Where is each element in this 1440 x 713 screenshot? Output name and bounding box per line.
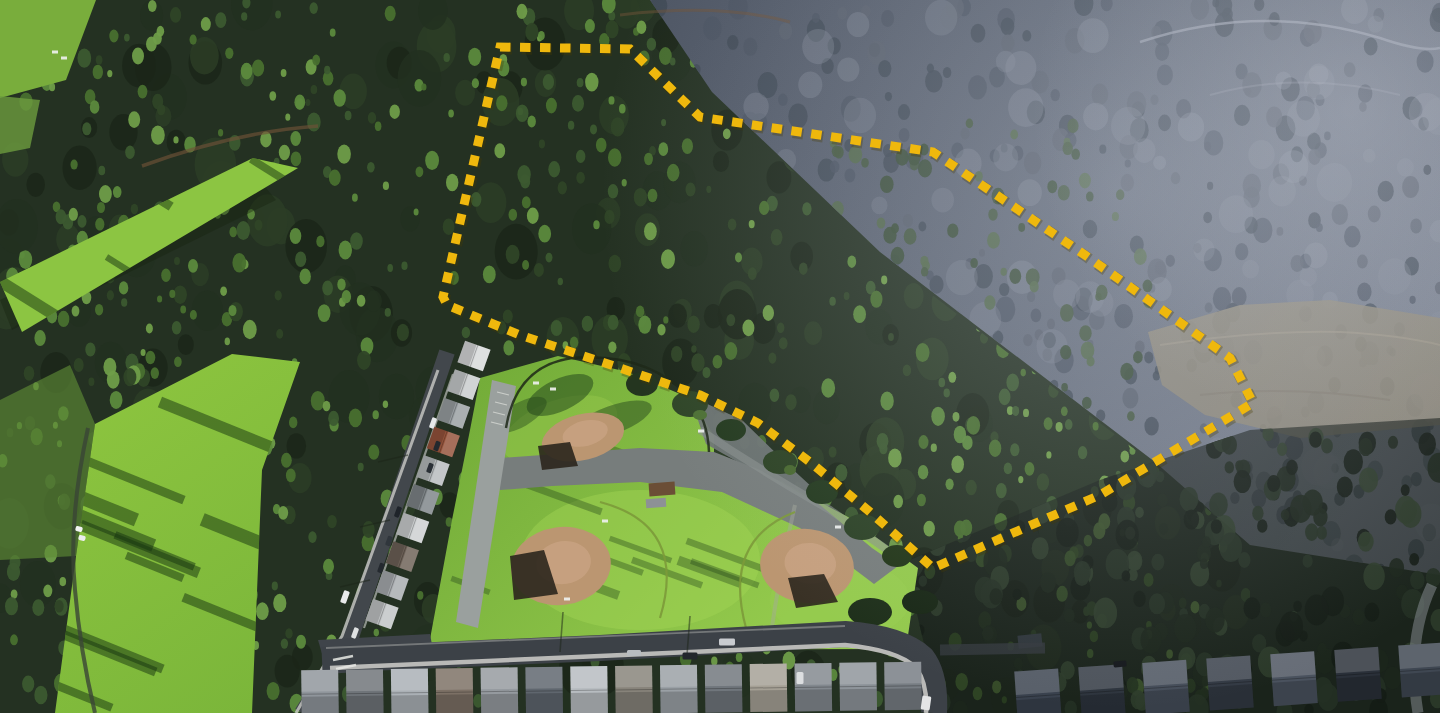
aerial-photo-canvas	[0, 0, 1440, 713]
aerial-photo	[0, 0, 1440, 713]
atmosphere-haze	[0, 0, 1440, 713]
